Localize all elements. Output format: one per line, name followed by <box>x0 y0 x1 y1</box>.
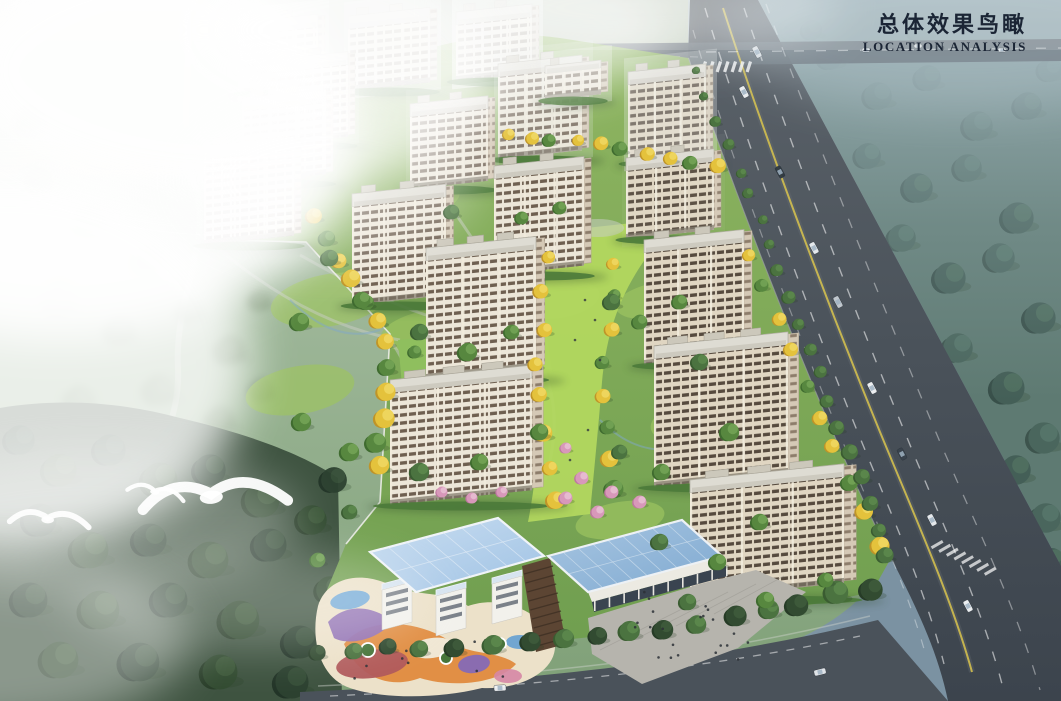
car <box>494 685 506 692</box>
apartment-building <box>611 134 738 248</box>
title-block: 总体效果鸟瞰 LOCATION ANALYSIS <box>863 12 1027 55</box>
page-title: 总体效果鸟瞰 <box>863 12 1027 37</box>
aerial-rendering <box>0 0 1061 701</box>
page-subtitle: LOCATION ANALYSIS <box>863 39 1027 55</box>
rendering-canvas: 总体效果鸟瞰 LOCATION ANALYSIS <box>0 0 1061 701</box>
